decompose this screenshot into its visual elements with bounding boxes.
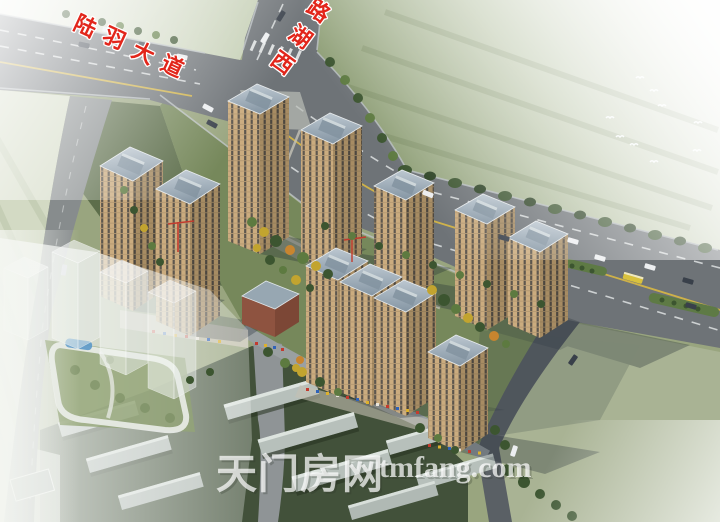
tower-slab-c bbox=[374, 280, 436, 416]
aerial-render-image: 陆 羽 大 道 路 湖 西 天门房网 tmfang.com 天门房网 tmfan… bbox=[0, 0, 720, 522]
watermark-site-name: 天门房网 bbox=[216, 451, 384, 497]
render-canvas: 陆 羽 大 道 路 湖 西 天门房网 tmfang.com 天门房网 tmfan… bbox=[0, 0, 720, 522]
watermark-site-url: tmfang.com bbox=[379, 451, 531, 484]
